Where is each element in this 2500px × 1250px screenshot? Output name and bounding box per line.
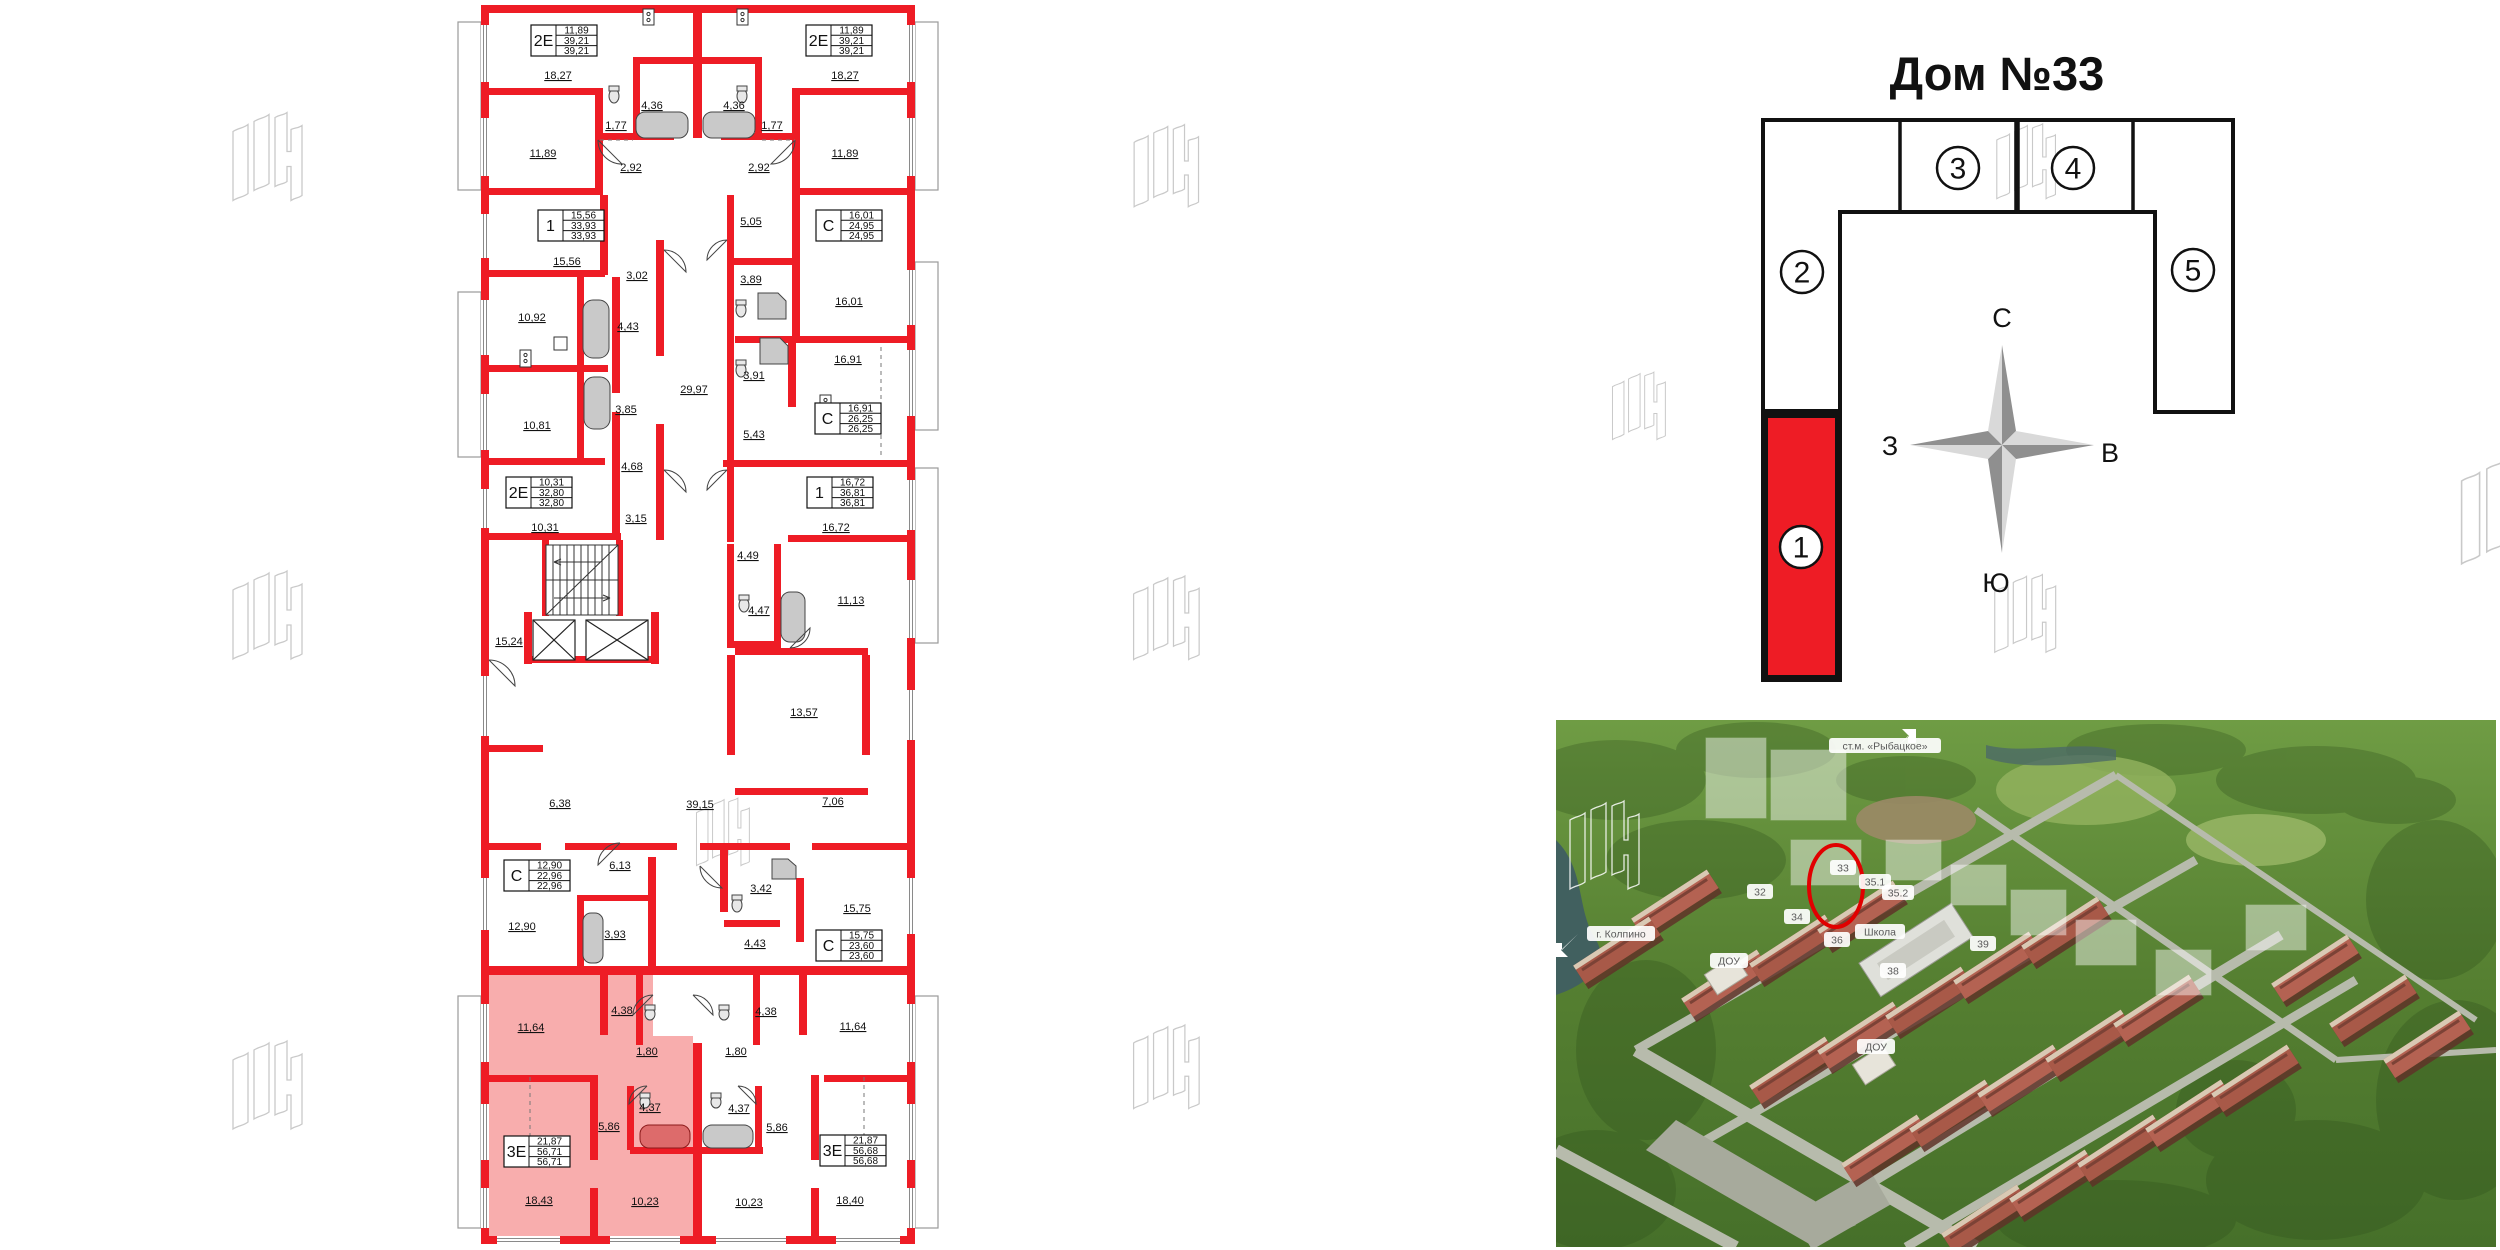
stamp-area-value: 36,81 — [840, 498, 865, 509]
scheme-section-5: 5 — [2172, 249, 2214, 291]
apartment-stamp: С15,7523,6023,60 — [816, 930, 882, 962]
stamp-area-value: 24,95 — [849, 231, 874, 242]
scheme-section-number: 2 — [1794, 257, 1811, 290]
map-label-badge: 33 — [1830, 860, 1856, 875]
room-area-label: 4,47 — [748, 605, 769, 617]
apartment-stamp: 2Е11,8939,2139,21 — [531, 25, 597, 57]
bathtub — [636, 112, 688, 138]
room-area-label: 3,93 — [604, 929, 625, 941]
room-area-label: 3,15 — [625, 513, 646, 525]
room-area-label: 4,43 — [744, 938, 765, 950]
room-area-label: 6,38 — [549, 798, 570, 810]
room-area-label: 10,23 — [735, 1197, 763, 1209]
room-area-label: 11,64 — [518, 1022, 545, 1034]
map-label-badge: 35.2 — [1882, 885, 1914, 900]
stamp-area-value: 22,96 — [537, 881, 562, 892]
map-label-text: 34 — [1791, 912, 1803, 924]
apartment-stamp: С16,9126,2526,25 — [815, 403, 881, 435]
map-label-badge: ст.м. «Рыбацкое» — [1829, 738, 1941, 753]
stamp-area-value: 32,80 — [539, 498, 564, 509]
room-area-label: 1,77 — [761, 120, 782, 132]
room-area-label: 4,38 — [611, 1005, 632, 1017]
stamp-area-value: 33,93 — [571, 231, 596, 242]
map-label-text: Школа — [1864, 927, 1896, 939]
scheme-section-3: 3 — [1937, 147, 1979, 189]
room-area-label: 10,31 — [531, 522, 559, 534]
map-label-badge: 34 — [1784, 909, 1810, 924]
room-area-label: 10,23 — [631, 1196, 659, 1208]
room-area-label: 4,36 — [641, 100, 662, 112]
stamp-area-value: 39,21 — [564, 46, 589, 57]
compass-rose: С З В Ю — [1882, 303, 2119, 598]
scheme-section-4: 4 — [2052, 147, 2094, 189]
apartment-stamp: 3Е21,8756,6856,68 — [820, 1135, 886, 1167]
room-area-label: 2,92 — [620, 162, 641, 174]
apartment-stamp: С16,0124,9524,95 — [816, 210, 882, 242]
room-area-label: 16,01 — [835, 296, 863, 308]
room-area-label: 5,05 — [740, 216, 761, 228]
room-area-label: 7,06 — [822, 796, 843, 808]
map-label-badge: 39 — [1970, 936, 1996, 951]
apartment-stamp: 116,7236,8136,81 — [807, 477, 873, 509]
room-area-label: 5,43 — [743, 429, 764, 441]
bathtub — [703, 112, 755, 138]
room-area-label: 5,86 — [766, 1122, 787, 1134]
map-label-text: 33 — [1837, 863, 1849, 875]
room-area-label: 15,56 — [553, 256, 581, 268]
scheme-section-number: 1 — [1793, 532, 1810, 565]
shower — [760, 338, 788, 364]
compass-north: С — [1992, 303, 2012, 333]
map-label-text: ДОУ — [1865, 1042, 1887, 1054]
room-area-label: 11,64 — [840, 1021, 867, 1033]
plan-viewer-canvas: { "colors": { "wall_red": "#ee1c25", "hi… — [0, 0, 2500, 1250]
room-area-label: 18,40 — [836, 1195, 864, 1207]
stamp-area-value: 56,71 — [537, 1157, 562, 1168]
room-area-label: 18,43 — [525, 1195, 553, 1207]
map-label-text: ДОУ — [1718, 956, 1740, 968]
elevator-shafts — [533, 620, 648, 660]
room-area-label: 4,68 — [621, 461, 642, 473]
room-area-label: 10,81 — [523, 420, 551, 432]
stamp-area-value: 23,60 — [849, 951, 874, 962]
room-area-label: 1,80 — [636, 1046, 657, 1058]
scheme-section-number: 3 — [1950, 153, 1967, 186]
room-area-label: 11,89 — [530, 148, 557, 160]
compass-east: В — [2101, 438, 2119, 468]
stamp-area-value: 56,68 — [853, 1156, 878, 1167]
apartment-stamp: 115,5633,9333,93 — [538, 210, 604, 242]
scheme-section-2: 2 — [1781, 251, 1823, 293]
room-area-label: 18,27 — [831, 70, 859, 82]
room-area-label: 4,49 — [737, 550, 758, 562]
apartment-stamp: С12,9022,9622,96 — [504, 860, 570, 892]
shower — [772, 859, 796, 879]
room-area-label: 39,15 — [686, 799, 714, 811]
stamp-area-value: 39,21 — [839, 46, 864, 57]
stamp-type: С — [511, 868, 523, 885]
stamp-type: 2Е — [509, 485, 529, 502]
stamp-type: 3Е — [823, 1143, 843, 1160]
room-area-label: 15,24 — [495, 636, 523, 648]
staircase — [546, 545, 618, 615]
room-area-label: 4,43 — [617, 321, 638, 333]
room-area-label: 18,27 — [544, 70, 572, 82]
room-area-label: 3,42 — [750, 883, 771, 895]
room-area-label: 2,92 — [748, 162, 769, 174]
room-area-label: 15,75 — [843, 903, 871, 915]
bathtub — [584, 377, 610, 429]
room-area-label: 12,90 — [508, 921, 536, 933]
bathtub — [781, 592, 805, 642]
bathtub — [583, 913, 603, 963]
stamp-type: 2Е — [809, 33, 829, 50]
scheme-section-number: 5 — [2185, 255, 2202, 288]
room-area-label: 1,80 — [725, 1046, 746, 1058]
map-label-text: 38 — [1887, 966, 1899, 978]
room-area-label: 3,91 — [743, 370, 764, 382]
room-area-label: 3,02 — [626, 270, 647, 282]
apartment-stamp: 3Е21,8756,7156,71 — [504, 1136, 570, 1168]
map-label-text: 32 — [1754, 887, 1766, 899]
map-label-badge: Школа — [1855, 924, 1905, 939]
room-area-label: 4,38 — [755, 1006, 776, 1018]
room-area-label: 4,37 — [728, 1103, 749, 1115]
stamp-type: 3Е — [507, 1144, 527, 1161]
room-area-label: 4,36 — [723, 100, 744, 112]
apartment-stamp: 2Е11,8939,2139,21 — [806, 25, 872, 57]
shower — [758, 293, 786, 319]
building-scheme: Дом №33 12345 С З В Ю — [1740, 20, 2360, 700]
map-label-text: 35.2 — [1888, 888, 1909, 900]
map-label-badge: 32 — [1747, 884, 1773, 899]
scheme-title: Дом №33 — [1890, 47, 2105, 100]
room-area-label: 16,72 — [822, 522, 850, 534]
bathtub-highlighted — [640, 1125, 690, 1148]
map-label-text: 35.1 — [1865, 877, 1886, 889]
stamp-type: С — [823, 938, 835, 955]
map-label-badge: г. Колпино — [1587, 926, 1655, 941]
bathtub — [703, 1125, 753, 1148]
stamp-type: С — [823, 218, 835, 235]
room-area-label: 3,89 — [740, 274, 761, 286]
room-area-label: 3,85 — [615, 404, 636, 416]
scheme-section-number: 4 — [2065, 153, 2082, 186]
compass-west: З — [1882, 431, 1898, 461]
stamp-type: 1 — [546, 218, 555, 235]
map-label-text: г. Колпино — [1596, 929, 1646, 941]
apartment-stamp: 2Е10,3132,8032,80 — [506, 477, 572, 509]
room-area-label: 4,37 — [639, 1102, 660, 1114]
stamp-area-value: 26,25 — [848, 424, 873, 435]
room-area-label: 16,91 — [834, 354, 862, 366]
floor-plan: 2Е11,8939,2139,212Е11,8939,2139,21115,56… — [440, 0, 960, 1250]
map-label-badge: 36 — [1824, 932, 1850, 947]
map-label-badge: ДОУ — [1857, 1039, 1895, 1054]
map-label-badge: 38 — [1880, 963, 1906, 978]
map-label-text: 36 — [1831, 935, 1843, 947]
compass-south: Ю — [1982, 568, 2009, 598]
room-area-label: 11,89 — [832, 148, 859, 160]
stamp-type: 1 — [815, 485, 824, 502]
room-area-label: 1,77 — [605, 120, 626, 132]
bathtub — [583, 300, 609, 358]
stamp-type: 2Е — [534, 33, 554, 50]
room-area-label: 6,13 — [609, 860, 630, 872]
aerial-photo: ст.м. «Рыбацкое»г. Колпино323335.135.234… — [1556, 720, 2496, 1247]
room-area-label: 13,57 — [790, 707, 818, 719]
room-area-label: 5,86 — [598, 1121, 619, 1133]
room-area-label: 29,97 — [680, 384, 708, 396]
scheme-section-1: 1 — [1780, 526, 1822, 568]
stamp-type: С — [822, 411, 834, 428]
room-area-label: 10,92 — [518, 312, 546, 324]
map-label-text: 39 — [1977, 939, 1989, 951]
room-area-label: 11,13 — [838, 595, 865, 607]
map-label-badge: ДОУ — [1710, 953, 1748, 968]
